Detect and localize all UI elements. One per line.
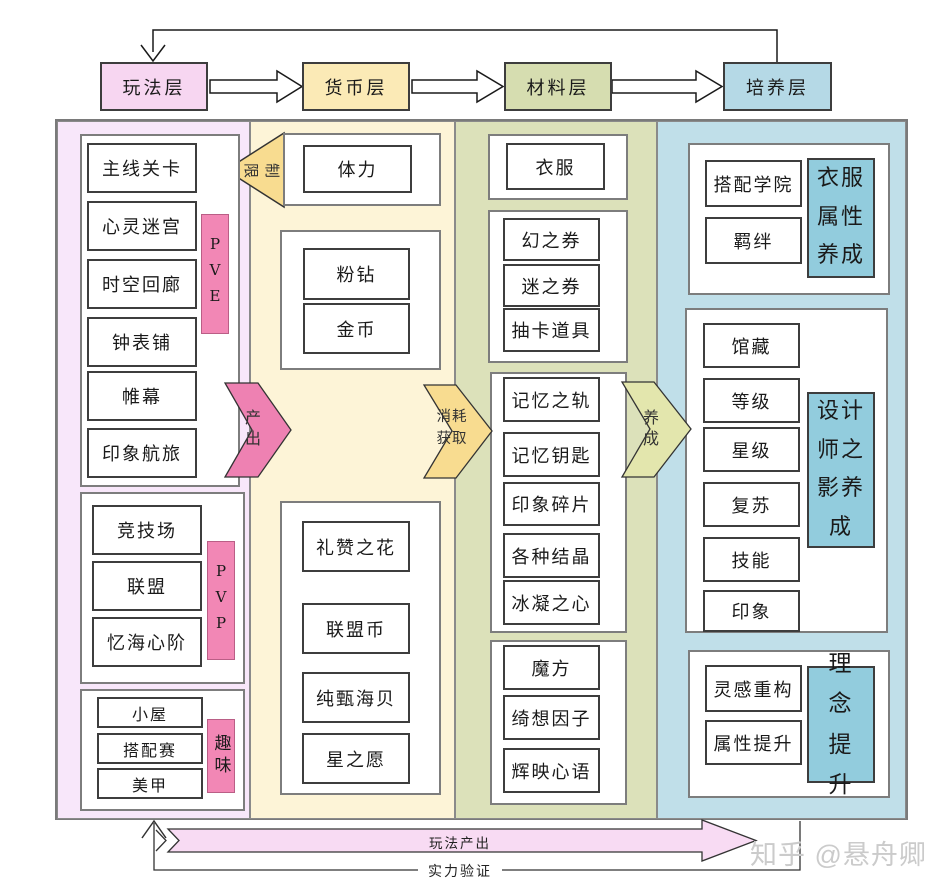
watermark: 知乎 @悬舟卿 [750,833,927,872]
gameplay-produce-label: 玩法产出 [410,832,510,852]
produce-arrow-label: 产出 [236,399,266,461]
chevron-layer [0,0,951,888]
restrict-arrow-label: 限 制 [238,154,286,186]
strength-verify-label: 实力验证 [418,861,502,881]
consume-acquire-arrow-label: 消耗获取 [435,406,469,451]
restrict-char-1: 限 [241,162,262,177]
diagram-canvas: 玩法层 货币层 材料层 培养层 主线关卡 心灵迷宫 时空回廊 钟表铺 帷幕 印象… [0,0,951,888]
train-arrow-label: 养成 [634,399,664,461]
restrict-char-2: 制 [262,162,283,177]
